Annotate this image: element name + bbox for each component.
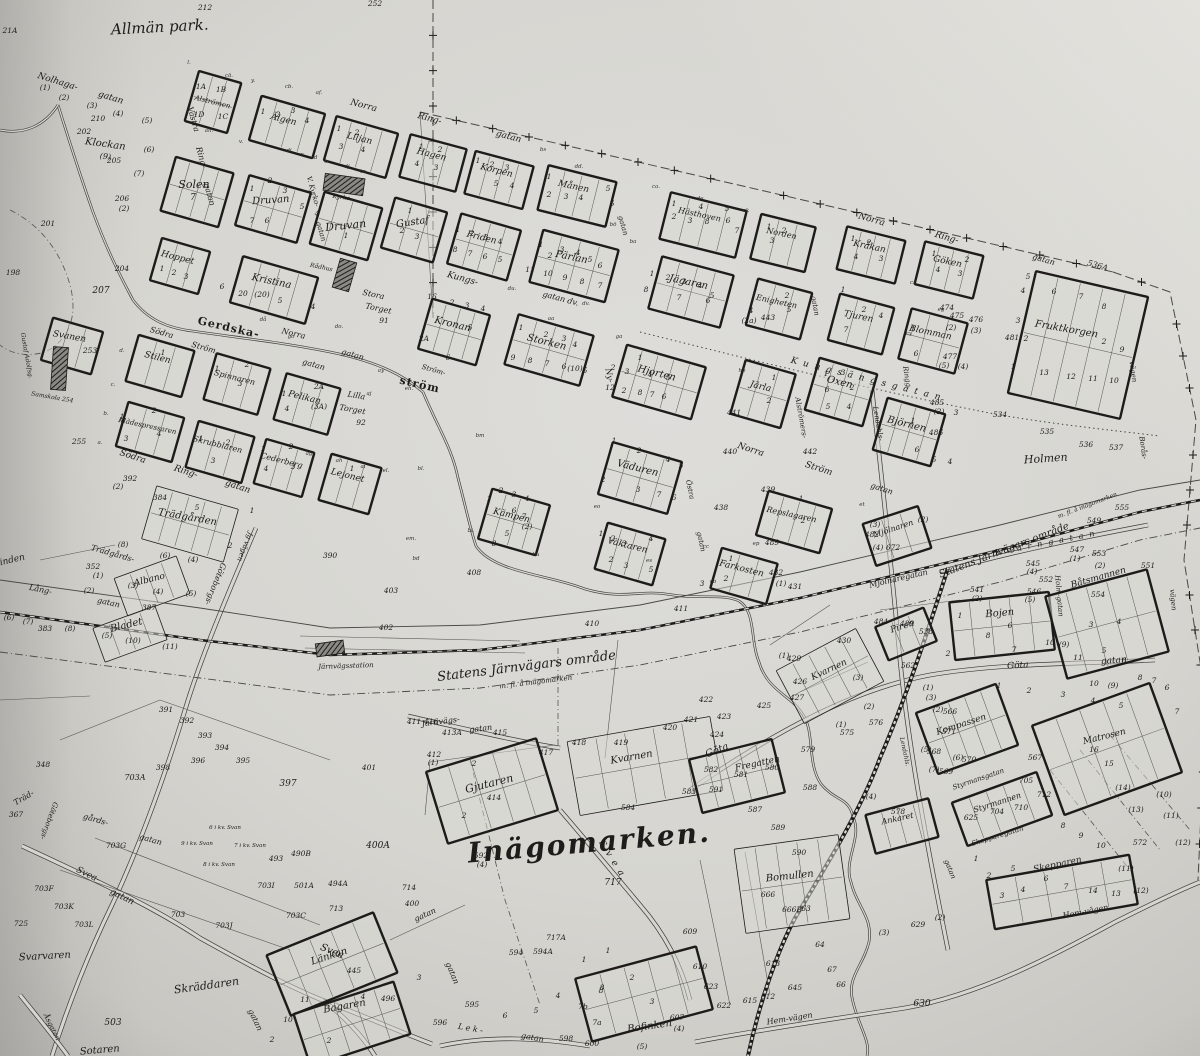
parcel-number: 2 (636, 446, 642, 455)
parcel-number: 703F (34, 884, 54, 893)
parcel-number: 555 (1115, 503, 1130, 512)
parcel-number: 572 (1133, 838, 1148, 847)
hatched-building (51, 347, 69, 391)
parcel-number: 11 (1088, 374, 1098, 383)
parcel-number: 581 (734, 770, 748, 779)
parcel-number: 1 (408, 206, 413, 215)
parcel-number: 3 (1089, 620, 1094, 629)
parcel-number: 438 (713, 503, 729, 512)
parcel-number: 2 (275, 110, 281, 119)
parcel-number: 10 (1045, 638, 1055, 647)
survey-point-code: et (859, 502, 865, 508)
parcel-number: 1 (672, 199, 677, 208)
parcel-number: 2 (498, 486, 504, 495)
parcel-number: 2 (723, 574, 729, 583)
parcel-number: (4) (477, 860, 488, 869)
parcel-number: 1 (539, 240, 544, 249)
parcel-number: 3 (688, 216, 693, 225)
parcel-number: (5) (939, 361, 950, 370)
survey-point-code: eo (594, 504, 601, 510)
parcel-number: 419 (613, 738, 629, 747)
parcel-number: 2 (784, 291, 790, 300)
parcel-number: 400A (365, 841, 390, 851)
parcel-number: 414 (486, 793, 502, 802)
parcel-number: 575 (840, 728, 855, 737)
map-label: 6 i kv. Svan (209, 825, 241, 831)
parcel-number: (2) (119, 204, 130, 213)
parcel-number: 352 (86, 562, 101, 571)
parcel-number: 6 (915, 445, 920, 454)
parcel-number: 394 (215, 743, 230, 752)
parcel-number: 8 (580, 277, 585, 286)
parcel-number: 584 (621, 803, 636, 812)
parcel-number: 3 (841, 368, 846, 377)
parcel-number: 705 (1019, 776, 1034, 785)
parcel-number: 703I (257, 881, 275, 890)
parcel-number: 7 (650, 390, 655, 399)
parcel-number: 1 (997, 681, 1002, 690)
parcel-number: 7a (592, 1018, 601, 1027)
parcel-number: (7) (23, 617, 34, 626)
parcel-number: (10) (1156, 790, 1171, 799)
parcel-number: 2 (600, 475, 606, 484)
parcel-number: 2 (151, 406, 157, 415)
parcel-number: 717 (604, 878, 621, 888)
parcel-number: 14 (1088, 886, 1098, 895)
parcel-number: 421 (683, 715, 698, 724)
parcel-number: 6 (662, 392, 667, 401)
parcel-number: 400 (404, 899, 420, 908)
parcel-number: (2) (933, 705, 944, 714)
parcel-number: 580 (765, 763, 780, 772)
parcel-number: 3 (415, 232, 420, 241)
parcel-number: 7 (250, 216, 255, 225)
parcel-number: 8 (644, 285, 649, 294)
parcel-number: 431 (787, 582, 802, 591)
parcel-number: 485 (929, 398, 945, 407)
parcel-number: 2 (547, 251, 553, 260)
parcel-number: 391 (159, 705, 173, 714)
survey-point-code: eg (938, 307, 945, 313)
parcel-number: 5 (666, 373, 671, 382)
parcel-number: 4 (935, 265, 941, 274)
parcel-number: 713 (329, 904, 344, 913)
parcel-number: (2a) (741, 316, 756, 325)
parcel-number: 489 (899, 619, 915, 628)
parcel-number: 15 (1104, 759, 1114, 768)
parcel-number: 2 (1101, 337, 1107, 346)
parcel-number: 477 (942, 352, 958, 361)
parcel-number: 20 (237, 289, 248, 298)
parcel-number: 703C (286, 911, 306, 920)
parcel-number: 7 (1079, 292, 1084, 301)
parcel-number: 1 (250, 506, 255, 515)
parcel-number: 481 (1004, 333, 1019, 342)
parcel-number: 5 (679, 461, 684, 470)
parcel-number: 4 (555, 991, 561, 1000)
parcel-number: 10 (543, 269, 553, 278)
parcel-number: 2 (866, 238, 872, 247)
parcel-number: 476 (968, 315, 984, 324)
parcel-number: 4 (509, 181, 515, 190)
parcel-number: 2 (766, 396, 772, 405)
parcel-number: 703K (54, 902, 74, 911)
parcel-number: 8 (1138, 673, 1143, 682)
parcel-number: 6 (483, 252, 488, 261)
parcel-number: 63 (801, 904, 811, 913)
parcel-number: 672 (886, 543, 901, 552)
parcel-number: 2 (227, 541, 233, 550)
survey-point-code: aj (367, 391, 372, 397)
map-label: 8 i kv. Svan (203, 862, 235, 868)
parcel-number: (3) (853, 673, 864, 682)
survey-point-code: tn (360, 169, 366, 175)
parcel-number: 475 (949, 311, 965, 320)
parcel-number: 4 (1116, 617, 1122, 626)
survey-point-code: a. (97, 440, 102, 446)
parcel-number: 2 (781, 226, 787, 235)
parcel-number: 612 (761, 992, 776, 1001)
parcel-number: (1) (779, 651, 790, 660)
parcel-number: (5) (186, 589, 197, 598)
parcel-number: 613 (766, 959, 781, 968)
parcel-number: 1 (487, 494, 492, 503)
parcel-number: 2 (610, 534, 616, 543)
parcel-number: 6 (672, 493, 677, 502)
parcel-number: 7 (1152, 676, 1157, 685)
parcel-number: 383 (38, 624, 53, 633)
parcel-number: 384 (153, 493, 168, 502)
parcel-number: 413A (441, 728, 462, 737)
parcel-number: 583 (682, 787, 697, 796)
parcel-number: 396 (191, 756, 206, 765)
parcel-number: 566 (943, 707, 958, 716)
map-label: Solen (178, 178, 209, 191)
parcel-number: 8 (453, 245, 458, 254)
parcel-number: (2) (84, 586, 95, 595)
parcel-number: 610 (693, 962, 708, 971)
parcel-number: 2 (399, 226, 405, 235)
parcel-number: 2 (326, 1036, 332, 1045)
parcel-number: 579 (801, 745, 816, 754)
survey-point-code: hb (738, 368, 746, 374)
parcel-number: 596 (433, 1018, 448, 1027)
parcel-number: 578 (891, 807, 906, 816)
parcel-number: 1D (194, 110, 205, 119)
parcel-number: 725 (14, 919, 29, 928)
parcel-number: 712 (1037, 790, 1052, 799)
parcel-number: 395 (236, 756, 251, 765)
parcel-number: 9 (1120, 345, 1125, 354)
survey-point-code: bi. (467, 528, 474, 534)
parcel-number: 5 (725, 204, 730, 213)
map-label: 7 i kv. Svan (234, 843, 266, 849)
parcel-number: 1 (215, 364, 220, 373)
survey-point-code: go (288, 334, 296, 340)
parcel-number: 1 (772, 373, 777, 382)
parcel-number: 367 (9, 810, 24, 819)
parcel-number: 1B (216, 85, 227, 94)
parcel-number: 4 (360, 992, 366, 1001)
parcel-number: 426 (792, 677, 808, 686)
survey-point-code: ah. (205, 128, 214, 134)
parcel-number: 8 (1061, 821, 1066, 830)
parcel-number: 4 (497, 237, 503, 246)
parcel-number: 10 (1096, 841, 1106, 850)
parcel-number: 3 (562, 334, 567, 343)
survey-point-code: ag (306, 451, 313, 457)
parcel-number: 5 (195, 503, 200, 512)
parcel-number: 4 (698, 202, 704, 211)
parcel-number: 4 (647, 370, 653, 379)
parcel-number: 2 (546, 190, 552, 199)
parcel-number: (9) (1059, 640, 1070, 649)
parcel-number: 571 (942, 727, 956, 736)
parcel-number: 6 (1165, 683, 1170, 692)
city-plan-map-photo: Allmän park.Inägomarken.Statens Järnväga… (0, 0, 1200, 1056)
parcel-number: 387 (142, 603, 157, 612)
parcel-number: (6) (953, 753, 964, 762)
parcel-number: 3 (625, 367, 630, 376)
parcel-number: 609 (683, 927, 698, 936)
parcel-number: 201 (40, 219, 55, 228)
survey-point-code: dd. (575, 164, 584, 170)
parcel-number: 7 (844, 325, 849, 334)
survey-point-code: bd (412, 556, 420, 562)
parcel-number: 541 (970, 585, 984, 594)
parcel-number: 206 (114, 194, 130, 203)
parcel-number: (1) (776, 579, 787, 588)
parcel-number: 418 (571, 738, 587, 747)
parcel-number: 1 (261, 444, 266, 453)
map-label: Göta (1007, 660, 1029, 671)
survey-point-code: du. (508, 286, 517, 292)
parcel-number: (7) (929, 765, 940, 774)
survey-point-code: cc (703, 544, 709, 550)
parcel-number: 6 (914, 349, 919, 358)
parcel-number: 410 (584, 619, 600, 628)
parcel-number: 425 (756, 701, 772, 710)
parcel-number: 5 (1011, 864, 1016, 873)
parcel-number: 629 (911, 920, 926, 929)
parcel-number: (11) (1118, 864, 1133, 873)
parcel-number: 204 (114, 264, 130, 273)
parcel-number: 445 (346, 966, 362, 975)
parcel-number: 420 (662, 723, 678, 732)
parcel-number: 2 (489, 160, 495, 169)
parcel-number: 5 (826, 402, 831, 411)
parcel-number: 3 (564, 192, 569, 201)
parcel-number: 703J (215, 921, 233, 930)
parcel-number: 430 (836, 636, 852, 645)
parcel-number: 432 (768, 568, 784, 577)
parcel-number: 12 (605, 383, 615, 392)
parcel-number: 588 (803, 783, 818, 792)
parcel-number: (5) (1025, 595, 1036, 604)
survey-point-code: ad (311, 155, 318, 161)
parcel-number: 1 (261, 107, 266, 116)
parcel-number: 2 (1026, 686, 1032, 695)
parcel-number: 482 (864, 530, 880, 539)
parcel-number: (3) (87, 101, 98, 110)
parcel-number: 5 (787, 305, 792, 314)
parcel-number: 595 (465, 1000, 480, 1009)
parcel-number: 4 (853, 252, 859, 261)
parcel-number: 1 (851, 234, 856, 243)
parcel-number: 3 (238, 379, 243, 388)
parcel-number: 582 (704, 765, 719, 774)
parcel-number: 4 (878, 311, 884, 320)
parcel-number: (1) (93, 571, 104, 580)
survey-point-code: ay (378, 368, 385, 374)
parcel-number: 4 (665, 455, 671, 464)
parcel-number: 198 (6, 268, 21, 277)
parcel-number: 5 (588, 255, 593, 264)
parcel-number: 5 (494, 179, 499, 188)
survey-point-code: ai (360, 464, 365, 470)
parcel-number: 4 (648, 534, 654, 543)
parcel-number: (5) (637, 1042, 648, 1051)
parcel-number: 6 (610, 199, 615, 208)
parcel-number: 623 (704, 982, 719, 991)
parcel-number: 3 (484, 233, 489, 242)
parcel-number: (2) (864, 702, 875, 711)
parcel-number: 6 (706, 296, 711, 305)
parcel-number: (3) (926, 693, 937, 702)
parcel-number: 3 (291, 106, 296, 115)
parcel-number: 2 (621, 386, 627, 395)
parcel-number: 2 (543, 330, 549, 339)
survey-point-code: de. (697, 196, 706, 202)
map-label: 9 i kv. Svan (181, 841, 213, 847)
city-block (949, 592, 1055, 660)
survey-point-code: ga (616, 334, 623, 340)
parcel-number: (2) (934, 407, 945, 416)
parcel-number: 6 (446, 353, 451, 362)
parcel-number: 6 (598, 261, 603, 270)
parcel-number: 7 (1064, 882, 1069, 891)
parcel-number: 3 (770, 236, 775, 245)
parcel-number: 21A (2, 26, 19, 35)
parcel-number: 1A (196, 82, 207, 91)
parcel-number: 1 (958, 611, 963, 620)
parcel-number: 11 (525, 265, 535, 274)
parcel-number: 1 (599, 529, 604, 538)
parcel-number: 494A (327, 879, 348, 888)
survey-point-code: bm (476, 433, 485, 439)
parcel-number: 398 (156, 763, 171, 772)
parcel-number: 666B (782, 905, 802, 914)
parcel-number: 2 (608, 555, 614, 564)
parcel-number: 704 (990, 807, 1005, 816)
parcel-number: 1 (582, 955, 587, 964)
parcel-number: 2 (288, 442, 294, 451)
parcel-number: 212 (197, 3, 213, 12)
parcel-number: 5 (583, 366, 588, 375)
parcel-number: 16 (427, 292, 437, 301)
parcel-number: 416 (423, 717, 439, 726)
parcel-number: 493 (268, 854, 284, 863)
parcel-number: (3A) (311, 402, 327, 411)
parcel-number: 422 (698, 695, 714, 704)
parcel-number: 2 (800, 516, 806, 525)
parcel-number: 2 (449, 298, 455, 307)
parcel-number: 703A (124, 773, 145, 782)
parcel-number: 392 (123, 474, 138, 483)
parcel-number: 441 (726, 408, 741, 417)
parcel-number: (5) (142, 116, 153, 125)
parcel-number: 484 (873, 617, 889, 626)
parcel-number: 411 (406, 717, 421, 726)
parcel-number: 16 (1089, 745, 1099, 754)
parcel-number: 2 (267, 176, 273, 185)
parcel-number: 5 (1026, 272, 1031, 281)
parcel-number: 1 (932, 249, 937, 258)
parcel-number: 64 (815, 940, 825, 949)
parcel-number: (10) (567, 364, 582, 373)
parcel-number: 6 (726, 216, 731, 225)
parcel-number: 549 (1087, 516, 1102, 525)
parcel-number: (4) (674, 1024, 685, 1033)
parcel-number: 569 (939, 767, 954, 776)
parcel-number: (2) (59, 93, 70, 102)
survey-point-code: cb (710, 579, 717, 585)
parcel-number: 2 (629, 973, 635, 982)
parcel-number: 7 (522, 512, 527, 521)
parcel-number: 547 (1070, 545, 1085, 554)
parcel-number: 1 (754, 283, 759, 292)
survey-point-code: bu (532, 552, 540, 558)
parcel-number: 590 (792, 848, 807, 857)
parcel-number: 2 (437, 145, 443, 154)
parcel-number: 3 (1016, 316, 1021, 325)
parcel-number: 5 (932, 455, 937, 464)
parcel-number: (7) (134, 169, 145, 178)
parcel-number: 3 (700, 579, 705, 588)
parcel-number: 6 (220, 282, 225, 291)
parcel-number: 2 (964, 255, 970, 264)
survey-point-code: dj (344, 164, 350, 170)
survey-point-code: ba (630, 239, 637, 245)
parcel-number: 8 (986, 631, 991, 640)
parcel-number: 3 (339, 142, 344, 151)
parcel-number: 8 (600, 983, 605, 992)
parcel-number: 5 (468, 323, 473, 332)
parcel-number: 4 (575, 248, 581, 257)
parcel-number: 3 (124, 434, 129, 443)
parcel-number: 411 (673, 604, 688, 613)
parcel-number: 202 (76, 127, 92, 136)
parcel-number: 440 (722, 447, 738, 456)
survey-point-code: bs (540, 147, 547, 153)
parcel-number: 5 (505, 529, 510, 538)
parcel-number: (1) (923, 683, 934, 692)
parcel-number: 408 (466, 568, 482, 577)
parcel-number: 589 (771, 823, 786, 832)
parcel-number: 2 (469, 229, 475, 238)
parcel-number: 7 (468, 249, 473, 258)
parcel-number: 6 (825, 385, 830, 394)
parcel-number: 210 (90, 114, 106, 123)
parcel-number: 424 (709, 730, 725, 739)
parcel-number: 2 (225, 438, 231, 447)
parcel-number: 607 (670, 1013, 685, 1022)
parcel-number: 1 (419, 142, 424, 151)
parcel-number: 8 (705, 217, 710, 226)
parcel-number: 10 (1089, 679, 1099, 688)
parcel-number: 3 (650, 997, 655, 1006)
parcel-number: 10 (283, 1015, 293, 1024)
